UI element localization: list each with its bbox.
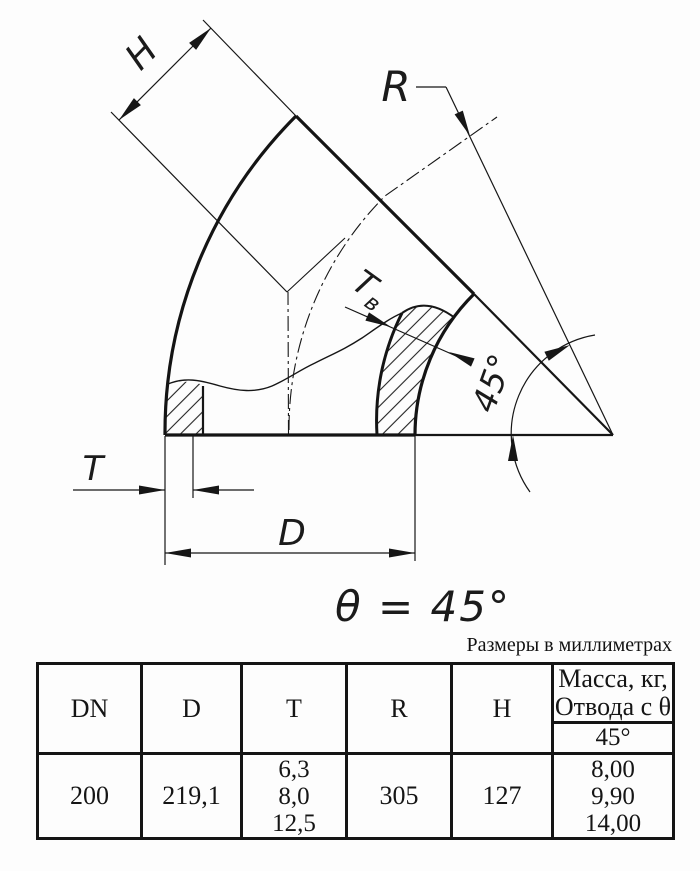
r-arrow — [455, 111, 470, 136]
left-wall-section-hatch — [166, 382, 203, 435]
upper-end-face — [296, 116, 474, 294]
axis-segment — [287, 238, 345, 292]
cell-mass-value: 14,00 — [554, 810, 672, 837]
header-t: T — [242, 664, 347, 754]
d-arrow-right — [389, 549, 415, 558]
cell-h: 127 — [452, 754, 553, 839]
header-mass: Масса, кг, Отвода с θ — [553, 664, 674, 723]
header-mass-line2: Отвода с θ — [554, 693, 672, 721]
header-d: D — [142, 664, 242, 754]
d-arrow-left — [165, 549, 191, 558]
cell-dn: 200 — [38, 754, 142, 839]
elbow-diagram: H R Tв 45° T D θ = 45° — [0, 0, 700, 660]
cell-mass-value: 8,00 — [554, 756, 672, 783]
centerline-vertical — [288, 292, 289, 435]
cell-t: 6,3 8,0 12,5 — [242, 754, 347, 839]
t-arrow-left — [139, 486, 165, 495]
r-dimension-label: R — [381, 62, 410, 111]
cell-t-value: 12,5 — [243, 810, 345, 837]
table-header-row: DN D T R H Масса, кг, Отвода с θ — [38, 664, 674, 723]
cell-t-value: 8,0 — [243, 783, 345, 810]
header-r: R — [347, 664, 452, 754]
dimensions-table: DN D T R H Масса, кг, Отвода с θ 45° 200… — [36, 662, 675, 840]
header-h: H — [452, 664, 553, 754]
t-dimension-label: T — [83, 449, 106, 489]
angle-arrow-upper — [544, 345, 570, 361]
header-dn: DN — [38, 664, 142, 754]
theta-note: θ = 45° — [335, 582, 511, 631]
h-dimension-label: H — [118, 30, 166, 78]
cell-mass-value: 9,90 — [554, 783, 672, 810]
header-mass-line1: Масса, кг, — [554, 665, 672, 693]
break-line-wavy — [168, 313, 402, 391]
tw-arrow-left — [365, 312, 391, 327]
header-mass-angle: 45° — [553, 723, 674, 754]
units-note: Размеры в миллиметрах — [467, 634, 672, 657]
cell-t-value: 6,3 — [243, 756, 345, 783]
d-dimension-label: D — [278, 513, 306, 554]
t-arrow-right — [193, 486, 219, 495]
angle-arc — [511, 335, 595, 492]
face-plane-extension-upper — [203, 20, 296, 116]
cell-mass: 8,00 9,90 14,00 — [553, 754, 674, 839]
table-data-row: 200 219,1 6,3 8,0 12,5 305 127 8,00 9,90… — [38, 754, 674, 839]
tw-arrow-right — [449, 352, 475, 367]
angle-arrow-lower — [508, 435, 518, 461]
cell-r: 305 — [347, 754, 452, 839]
elbow-drawing-page: H R Tв 45° T D θ = 45° Разм — [0, 0, 700, 871]
cell-d: 219,1 — [142, 754, 242, 839]
